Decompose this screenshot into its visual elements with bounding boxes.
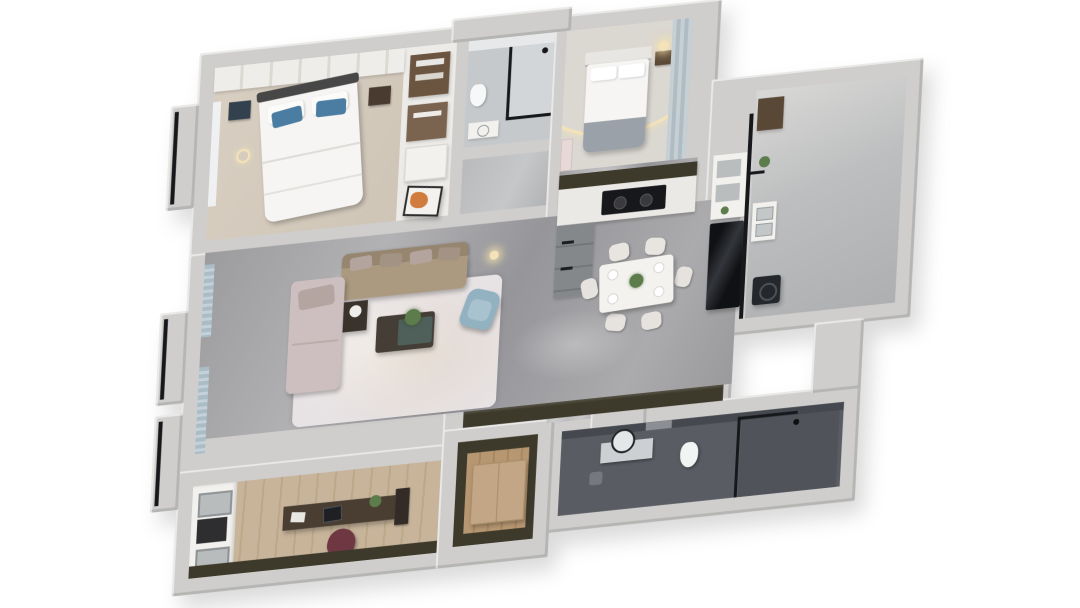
nightstand-left: [228, 100, 251, 120]
chaise-cushion: [298, 284, 335, 311]
utility-sink-icon: [756, 206, 774, 221]
cabinet-seam: [496, 463, 500, 521]
burner-icon: [639, 193, 653, 207]
coffee-table: [375, 311, 435, 353]
shower-tray: [509, 42, 555, 117]
bath-main-vanity: [468, 120, 499, 139]
white-pillow: [618, 63, 645, 79]
shelf-items: [413, 110, 441, 118]
closet-drawer-unit: [404, 144, 448, 183]
sofa-side-table: [342, 300, 368, 333]
tall-black-cabinet: [706, 220, 745, 310]
shelf-items: [415, 72, 443, 81]
bay-window-study: [150, 413, 183, 512]
floor-plan-render: [0, 0, 1080, 608]
sofa-cushion: [379, 253, 402, 267]
dining-shelf-unit: [710, 152, 747, 220]
shelf-niche: [715, 183, 740, 203]
orange-artwork: [403, 186, 444, 217]
cabinet-handle-icon: [562, 240, 574, 244]
shower-area-floor: [738, 410, 840, 497]
bay-window-living: [156, 311, 189, 406]
dining-chair: [644, 238, 666, 255]
plate-icon: [653, 285, 664, 298]
apartment-scene: [187, 0, 935, 608]
decor-plant-icon: [721, 206, 729, 215]
shelf-items: [416, 58, 444, 67]
washing-machine: [752, 275, 781, 306]
hallway-floor: [460, 151, 549, 214]
vanity-stool: [589, 471, 603, 485]
white-pillow: [590, 66, 617, 82]
chaise-lounge: [285, 276, 345, 394]
bedroom-two-nightstand: [655, 50, 672, 66]
built-in-dark-panel: [196, 517, 227, 544]
armchair-seat: [466, 298, 494, 322]
window-glass-icon: [160, 319, 168, 400]
duvet-fold: [262, 142, 360, 165]
burner-icon: [613, 196, 627, 210]
balcony-utility-cabinet: [751, 201, 777, 242]
wall-block-bath-connector: [811, 318, 865, 394]
nightstand-right: [368, 85, 391, 105]
duvet-fold: [264, 173, 362, 196]
cabinet-handle-icon: [560, 266, 572, 270]
plate-icon: [607, 293, 618, 306]
closet-wood-shelf-mid: [406, 102, 448, 142]
shelf-niche: [716, 159, 741, 179]
plate-icon: [607, 269, 618, 282]
desk-plant-icon: [369, 494, 382, 507]
bay-window-master: [166, 104, 199, 212]
window-glass-icon: [170, 112, 179, 205]
chaise-seam: [292, 339, 338, 346]
bedroom-two-bed: [583, 58, 650, 153]
utility-sink-icon: [755, 222, 773, 237]
washer-door-icon: [759, 282, 778, 302]
sofa-cushion: [437, 247, 461, 260]
entry-shoe-cabinet: [470, 459, 527, 525]
desk-book-rack: [394, 488, 410, 526]
laptop-icon: [323, 505, 342, 523]
window-glass-icon: [154, 421, 162, 506]
built-in-niche: [198, 490, 233, 518]
desk-papers: [290, 512, 305, 522]
blue-pillow: [316, 98, 347, 118]
centerpiece-plant-icon: [629, 273, 643, 289]
bedroom-two-shelf: [560, 138, 574, 171]
artwork-paint: [409, 192, 430, 209]
closet-wood-shelf-top: [408, 51, 450, 97]
master-bed: [259, 78, 364, 223]
basin-icon: [477, 124, 490, 137]
tray-icon: [349, 305, 362, 318]
balcony-wood-cabinet: [757, 96, 785, 131]
plate-icon: [653, 261, 664, 274]
